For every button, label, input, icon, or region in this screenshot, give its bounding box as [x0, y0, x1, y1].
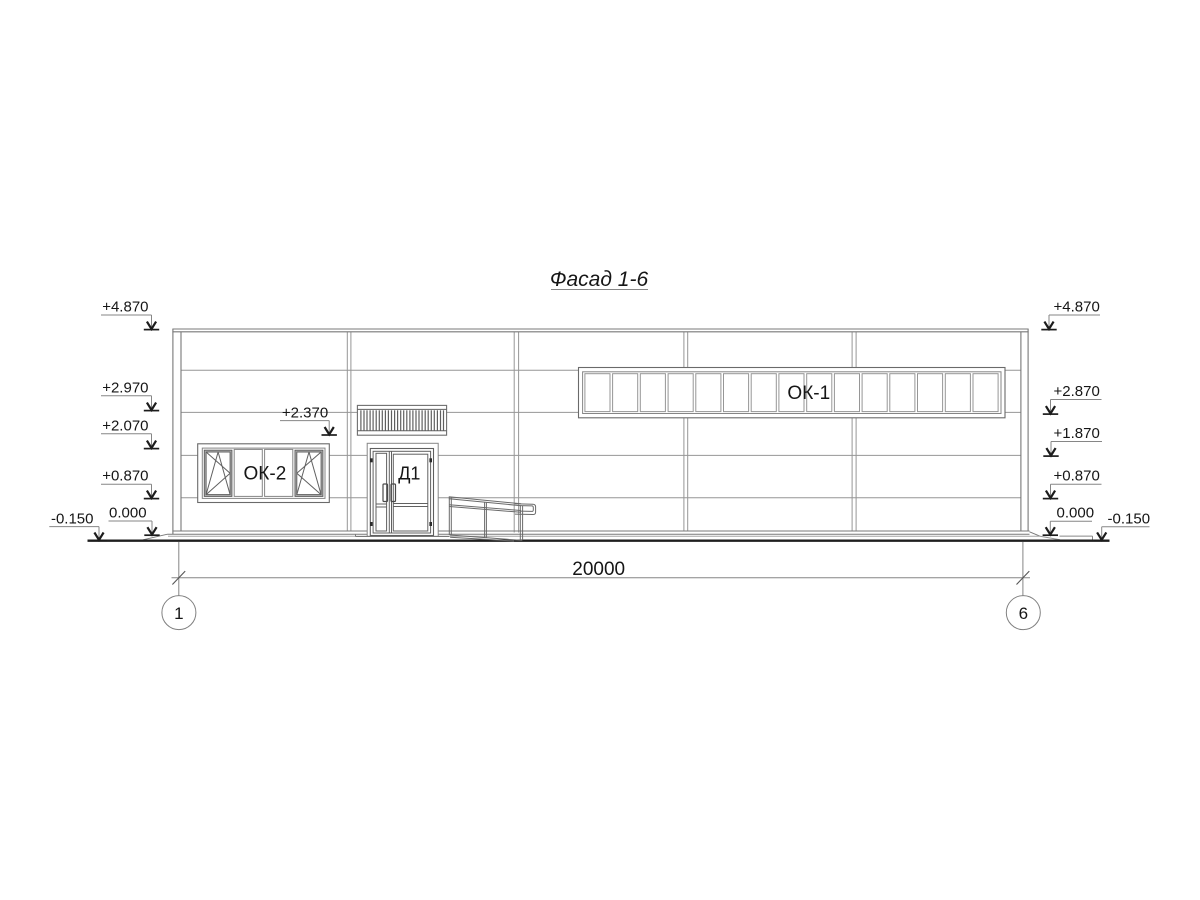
svg-text:ОК-1: ОК-1 — [787, 383, 830, 404]
svg-text:+2.870: +2.870 — [1054, 383, 1100, 400]
svg-text:0.000: 0.000 — [1057, 505, 1095, 522]
svg-text:Д1: Д1 — [398, 464, 420, 484]
svg-text:20000: 20000 — [572, 559, 625, 580]
svg-text:+2.370: +2.370 — [282, 405, 328, 422]
svg-text:6: 6 — [1019, 604, 1028, 623]
svg-text:ОК-2: ОК-2 — [244, 464, 287, 485]
svg-text:+0.870: +0.870 — [1054, 468, 1100, 485]
svg-text:+1.870: +1.870 — [1054, 425, 1100, 442]
svg-text:+4.870: +4.870 — [1054, 299, 1100, 316]
svg-text:Фасад 1-6: Фасад 1-6 — [550, 268, 649, 291]
svg-text:+2.970: +2.970 — [102, 379, 148, 396]
svg-text:-0.150: -0.150 — [1108, 511, 1151, 528]
svg-text:+0.870: +0.870 — [102, 468, 148, 485]
svg-text:+2.070: +2.070 — [102, 417, 148, 434]
svg-text:0.000: 0.000 — [109, 505, 147, 522]
svg-text:+4.870: +4.870 — [102, 299, 148, 316]
svg-text:1: 1 — [174, 604, 183, 623]
svg-text:-0.150: -0.150 — [51, 511, 94, 528]
